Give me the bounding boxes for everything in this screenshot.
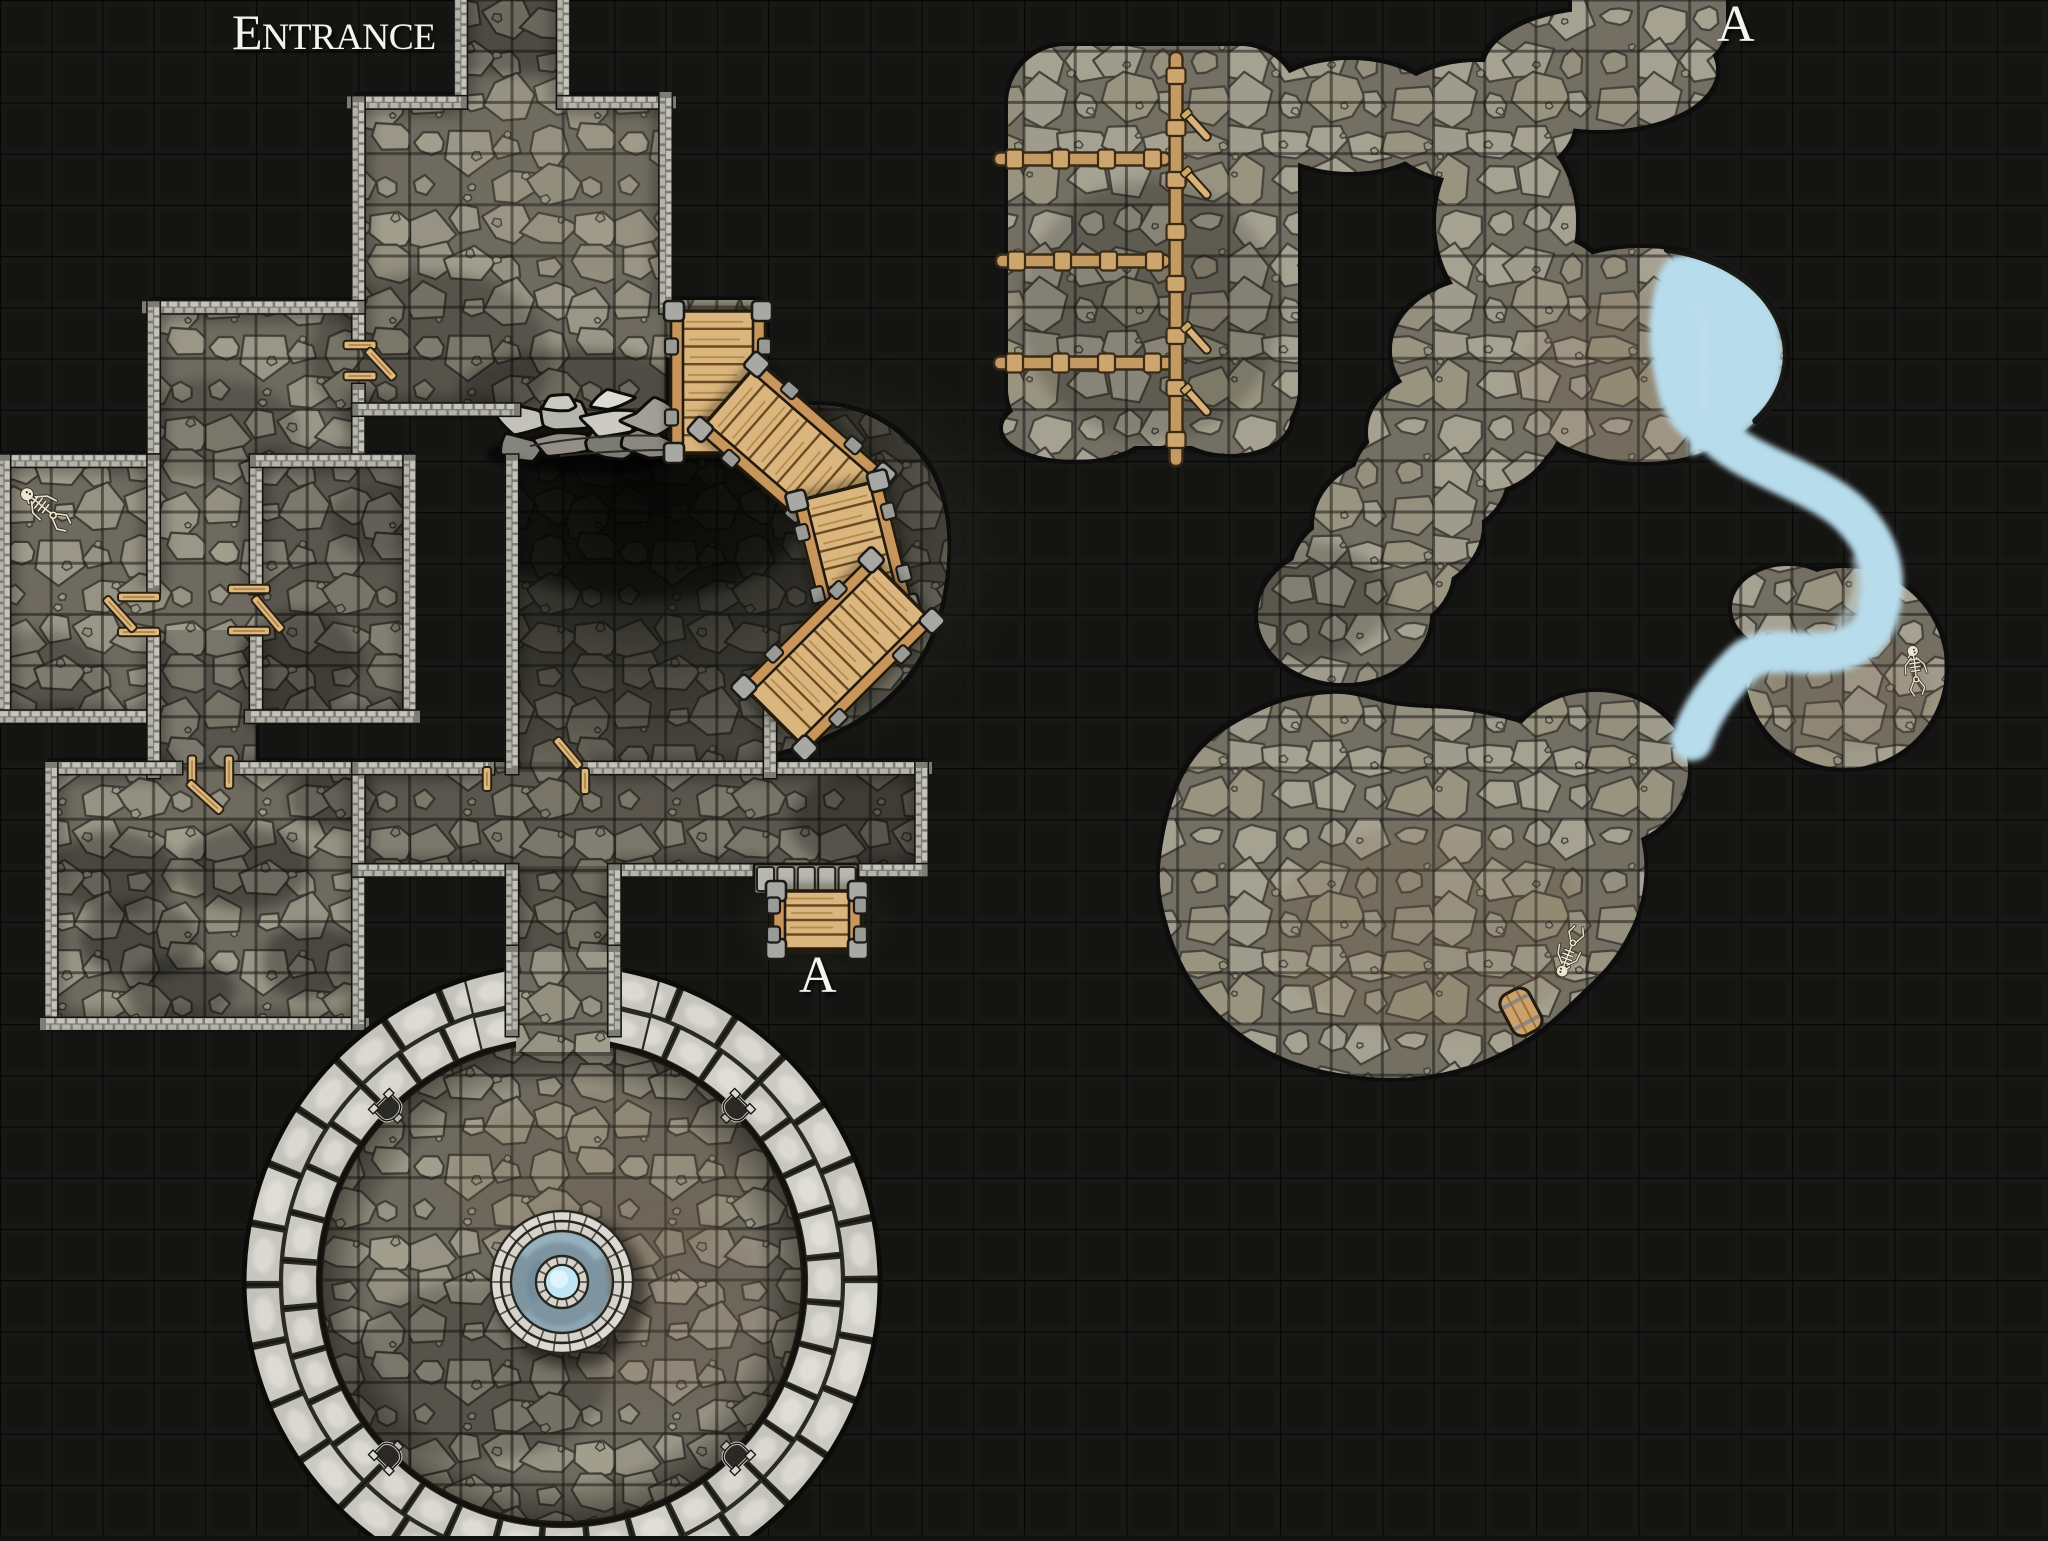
svg-text:A: A [1717,0,1755,53]
svg-text:A: A [799,947,837,1004]
